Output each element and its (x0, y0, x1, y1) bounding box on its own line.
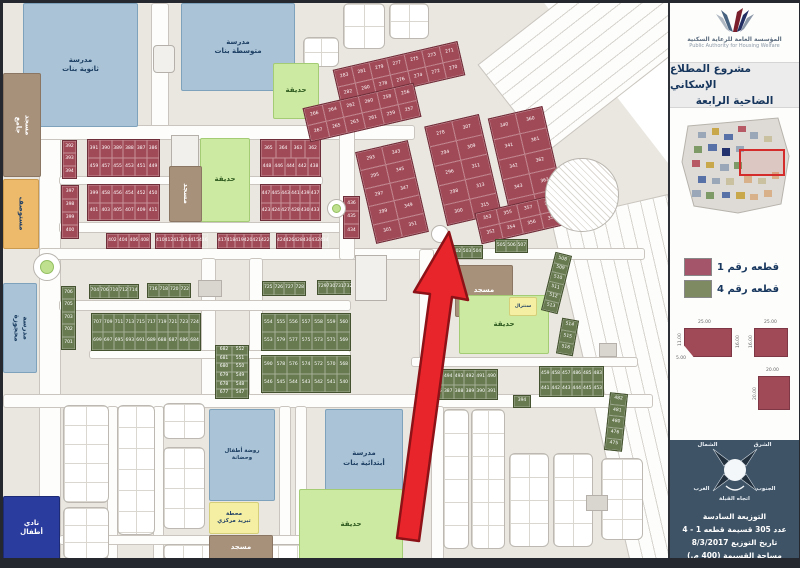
plot-cell: 388 (123, 140, 135, 158)
plot-cell: 724 (189, 314, 200, 332)
plot-cell: 491 (475, 370, 486, 385)
facility-label: حديقة (494, 320, 515, 329)
plot-cell: 558 (312, 314, 325, 332)
dim-label: 16.00 (749, 335, 754, 348)
plot-cell: 402 (107, 234, 118, 248)
plot-cell: 415 (190, 234, 199, 248)
legend-label: قطعه رقم 4 (717, 284, 779, 295)
logo-section: المؤسسة العامة للرعاية السكنية Public Au… (670, 3, 799, 62)
plot-cell: 433 (310, 203, 320, 221)
plot-cell: 556 (287, 314, 300, 332)
plot-cell: 456 (112, 185, 124, 203)
plot-cell: 445 (271, 185, 281, 203)
facility-central-exchange: سنترال (509, 297, 537, 316)
facility-label: محطة تبريد مركزي (217, 511, 250, 525)
plot-cell: 392 (63, 141, 76, 153)
plot-count: عدد 305 قسيمة قطعه 1 - 4 (670, 523, 799, 536)
service-building (153, 45, 175, 73)
plot-cell: 391 (88, 140, 100, 158)
plot-cell: 444 (572, 382, 583, 397)
title-section: مشروع المطلاع الإسكاني الضاحية الرابعة (670, 62, 799, 108)
plot-cell: 447 (261, 185, 271, 203)
plot-area: مساحة القسيمة (400 م.) (670, 549, 799, 558)
plot-block-red: 424426428430432434 (276, 233, 322, 249)
plot-cell: 711 (114, 314, 125, 332)
plot-cell: 547 (232, 389, 248, 398)
plot-cell: 721 (168, 314, 179, 332)
plot-cell: 364 (276, 140, 291, 158)
plot-block-red: 447445443441439437423424427428430433 (260, 184, 321, 221)
plot-block-red: 399458456454452450401403405407409411 (87, 184, 160, 221)
plot-cell: 428 (290, 203, 300, 221)
plot-cell: 552 (232, 346, 248, 355)
plot-cell: 445 (582, 382, 593, 397)
plot-cell: 573 (312, 332, 325, 350)
plot-cell: 446 (273, 158, 285, 176)
plot-cell: 430 (303, 234, 312, 248)
plot-block-red: 402404406408 (106, 233, 151, 249)
plot-cell: 485 (582, 367, 593, 382)
facility-label: مسجد (231, 543, 252, 552)
plot-cell: 576 (287, 356, 300, 374)
district-subtitle: الضاحية الرابعة (696, 93, 774, 109)
plot-cell: 386 (432, 385, 443, 400)
plot-cell: 389 (464, 385, 475, 400)
plot-cell: 555 (275, 314, 288, 332)
plot-block-green: 495494493492491490386387388389390391 (431, 369, 498, 400)
plot-block-green: 514515516 (556, 318, 579, 356)
facility-label: سنترال (515, 304, 531, 310)
facility-label: حديقة (215, 175, 236, 184)
plot-cell: 417 (218, 234, 227, 248)
service-building (586, 495, 608, 511)
plot-shape-square (758, 376, 790, 410)
plot-cell: 270 (443, 58, 464, 78)
service-building (599, 343, 617, 357)
plot-cell: 388 (454, 385, 465, 400)
plot-cell: 398 (62, 199, 78, 212)
dim-label: 20.00 (753, 387, 758, 400)
plot-cell: 450 (147, 185, 159, 203)
plot-block-green: 682552681551680550679549678548677547 (215, 345, 249, 399)
plot-cell: 705 (62, 299, 75, 311)
plot-cell: 439 (300, 185, 310, 203)
plot-cell: 505 (496, 240, 506, 252)
plot-cell: 409 (135, 203, 147, 221)
plot-cell: 706 (62, 287, 75, 299)
plot-cell: 718 (159, 284, 170, 297)
facility-label: حديقة (286, 86, 307, 95)
compass-south-label: الجنوب (756, 486, 775, 492)
plot-cell: 434 (320, 234, 329, 248)
facility-label: روضة أطفال وحضانة (224, 448, 259, 462)
plot-cell: 432 (311, 234, 320, 248)
plot-cell: 540 (337, 374, 350, 392)
plot-cell: 710 (109, 285, 119, 298)
compass-qibla-label: اتجاه القبلة (719, 496, 750, 502)
plot-cell: 679 (216, 372, 232, 381)
plot-block-green: 501502503504 (441, 245, 483, 259)
plot-block-green: 394 (513, 395, 531, 408)
facility-label: حديقة (341, 520, 362, 529)
plot-cell: 731 (335, 281, 344, 294)
plot-cell: 444 (285, 158, 297, 176)
plot-cell: 501 (442, 246, 452, 258)
plot-cell: 436 (344, 197, 359, 211)
info-sidebar: المؤسسة العامة للرعاية السكنية Public Au… (668, 3, 799, 558)
distribution-date: تاريخ التوزيع 8/3/2017 (670, 536, 799, 549)
plot-cell: 578 (275, 356, 288, 374)
plot-cell: 699 (92, 332, 103, 350)
legend: قطعه رقم 1 قطعه رقم 4 (670, 252, 799, 308)
plot-cell: 393 (63, 153, 76, 165)
plot-grid (63, 507, 109, 558)
plot-cell: 732 (344, 281, 353, 294)
plot-grid (471, 409, 505, 549)
plot-cell: 541 (325, 374, 338, 392)
plot-cell: 399 (88, 185, 100, 203)
facility-park-center: حديقة (200, 138, 250, 222)
plot-cell: 426 (286, 234, 295, 248)
plot-cell: 454 (123, 185, 135, 203)
plot-cell: 437 (310, 185, 320, 203)
plot-cell: 410 (156, 234, 165, 248)
overview-map (678, 112, 792, 248)
plot-cell: 551 (232, 355, 248, 364)
plot-cell: 399 (62, 212, 78, 225)
plot-cell: 448 (261, 158, 273, 176)
plot-cell: 459 (88, 158, 100, 176)
plot-block-red: 392393394 (62, 140, 77, 179)
plot-cell: 728 (295, 282, 306, 295)
facility-park-south: حديقة (299, 489, 403, 558)
plot-block-green: 704706710712714 (89, 284, 139, 299)
plot-block-green: 5545555565575585595605535795775755735715… (261, 313, 351, 351)
plot-block-red: 293343295345297347299349301351 (355, 140, 429, 244)
plot-cell: 707 (92, 314, 103, 332)
plot-cell: 421 (252, 234, 261, 248)
dim-label: 5.00 (676, 356, 686, 361)
plot-cell: 365 (261, 140, 276, 158)
service-building (355, 255, 387, 301)
plot-cell: 689 (146, 332, 157, 350)
plot-cell: 559 (325, 314, 338, 332)
plot-cell: 451 (135, 158, 147, 176)
plot-cell: 427 (281, 203, 291, 221)
facility-kindergarten-nursery: روضة أطفال وحضانة (209, 409, 275, 501)
facility-reserved-school: مدرسة محجوزة (3, 283, 37, 373)
plot-cell: 453 (593, 382, 604, 397)
plot-cell: 704 (90, 285, 100, 298)
plot-cell: 492 (464, 370, 475, 385)
compass-east-label: الشرق (754, 442, 772, 448)
plot-cell: 405 (112, 203, 124, 221)
plot-cell: 391 (486, 385, 497, 400)
plot-cell: 712 (119, 285, 129, 298)
plot-cell: 720 (169, 284, 180, 297)
plot-cell: 557 (300, 314, 313, 332)
plot-cell: 459 (540, 367, 551, 382)
facility-label: مسجد (181, 184, 190, 205)
plot-cell: 569 (337, 332, 350, 350)
plot-cell: 455 (112, 158, 124, 176)
plot-cell: 438 (308, 158, 320, 176)
plot-cell: 716 (148, 284, 159, 297)
legend-item-plot1: قطعه رقم 1 (684, 256, 799, 278)
distribution-info-panel: الشمال الشرق الغرب الجنوب اتجاه القبلة ا… (670, 440, 799, 558)
roundabout-west (33, 253, 61, 281)
plot-cell: 401 (88, 203, 100, 221)
plot-cell: 442 (551, 382, 562, 397)
plot-block-red: 436435434 (343, 196, 360, 239)
plot-cell: 680 (216, 363, 232, 372)
plot-cell: 430 (300, 203, 310, 221)
facility-label: مدرسة ثانوية بنات (62, 56, 99, 74)
plot-cell: 549 (232, 372, 248, 381)
facility-label: مسجد جامع (13, 115, 31, 136)
facility-mosque-south: مسجد (209, 535, 273, 558)
plot-cell: 406 (129, 234, 140, 248)
plot-cell: 407 (123, 203, 135, 221)
plot-cell: 414 (182, 234, 191, 248)
plot-cell: 570 (325, 356, 338, 374)
plot-cell: 453 (123, 158, 135, 176)
plot-cell: 693 (124, 332, 135, 350)
facility-grand-mosque: مسجد جامع (3, 73, 41, 177)
plot-cell: 548 (232, 381, 248, 390)
plot-block-red: 397398399400 (61, 185, 79, 239)
plot-grid (443, 409, 469, 549)
plot-block-green: 716718720722 (147, 283, 191, 298)
plot-cell: 486 (572, 367, 583, 382)
plot-cell: 574 (300, 356, 313, 374)
service-building (198, 280, 222, 297)
plot-cell: 387 (443, 385, 454, 400)
plot-cell: 507 (517, 240, 527, 252)
plot-cell: 493 (454, 370, 465, 385)
plot-cell: 483 (593, 367, 604, 382)
plot-block-green: 7077097117137157177197217237246996976956… (91, 313, 201, 351)
plot-cell: 572 (312, 356, 325, 374)
plot-cell: 723 (178, 314, 189, 332)
plot-cell: 397 (62, 186, 78, 199)
plot-grid (63, 405, 109, 503)
plot-cell: 545 (275, 374, 288, 392)
plot-cell: 725 (263, 282, 274, 295)
plot-cell: 443 (281, 185, 291, 203)
plot-cell: 428 (294, 234, 303, 248)
facility-label: مستوصف (16, 197, 25, 231)
legend-swatch-green (684, 280, 712, 298)
plot-block-green: 459458457486485483441442443444445453 (539, 366, 604, 397)
plot-cell: 418 (227, 234, 236, 248)
legend-swatch-red (684, 258, 712, 276)
plot-cell: 420 (244, 234, 253, 248)
overview-highlight (740, 150, 784, 175)
dim-label: 20.00 (766, 368, 779, 373)
plot-cell: 579 (275, 332, 288, 350)
map-sheet: مدرسة ثانوية بناتمدرسة متوسطة بناتمسجد ج… (0, 0, 800, 568)
plot-cell: 729 (318, 281, 327, 294)
plot-block-red: 410412413414415416 (155, 233, 202, 249)
compass-north-label: الشمال (698, 442, 718, 448)
plot-cell: 386 (147, 140, 159, 158)
plot-cell: 408 (139, 234, 150, 248)
service-building (171, 135, 199, 167)
pahw-logo-icon (713, 6, 757, 32)
plot-cell: 730 (327, 281, 336, 294)
plot-cell: 457 (561, 367, 572, 382)
plot-cell: 575 (300, 332, 313, 350)
plot-cell: 703 (62, 312, 75, 324)
plot-cell: 560 (337, 314, 350, 332)
plot-cell: 434 (344, 224, 359, 238)
plot-cell: 394 (514, 396, 530, 407)
plot-block-green: 505506507 (495, 239, 528, 253)
compass-west-label: الغرب (694, 486, 710, 492)
plot-cell: 714 (128, 285, 138, 298)
roundabout-east-junction (545, 158, 619, 232)
plot-cell: 687 (168, 332, 179, 350)
plot-cell: 706 (100, 285, 110, 298)
plot-cell: 363 (291, 140, 306, 158)
site-plan-map: مدرسة ثانوية بناتمدرسة متوسطة بناتمسجد ج… (3, 3, 668, 558)
plot-cell: 503 (462, 246, 472, 258)
plot-cell: 577 (287, 332, 300, 350)
plot-block-red: 417418419420421422 (217, 233, 270, 249)
plot-cell: 717 (146, 314, 157, 332)
plot-block-green: 5905785765745725705685465455445435425415… (261, 355, 351, 393)
legend-item-plot4: قطعه رقم 4 (684, 278, 799, 300)
plot-cell: 544 (287, 374, 300, 392)
plot-cell: 389 (112, 140, 124, 158)
plot-cell: 681 (216, 355, 232, 364)
plot-cell: 502 (452, 246, 462, 258)
plot-cell: 449 (147, 158, 159, 176)
plot-grid (509, 453, 549, 547)
facility-label: نادي أطفال (20, 519, 43, 537)
plot-block-green: 729730731732 (317, 280, 351, 295)
plot-cell: 300 (443, 199, 474, 225)
plot-cell: 684 (189, 332, 200, 350)
plot-cell: 475 (605, 438, 622, 451)
plot-cell: 424 (277, 234, 286, 248)
plot-cell: 697 (103, 332, 114, 350)
plot-block-green: 706705703702701 (61, 286, 76, 350)
road (59, 300, 351, 311)
plot-cell: 546 (262, 374, 275, 392)
plot-cell: 726 (274, 282, 285, 295)
plot-dimensions-section: 25.00 11.00 5.00 16.00 25.00 16.00 20.00… (670, 308, 799, 440)
plot-cell: 571 (325, 332, 338, 350)
plot-grid (389, 3, 429, 39)
facility-children-club: نادي أطفال (3, 496, 60, 558)
plot-cell: 553 (262, 332, 275, 350)
roundabout-center (327, 199, 346, 218)
plot-cell: 702 (62, 324, 75, 336)
plot-cell: 590 (262, 356, 275, 374)
roundabout-small (431, 225, 449, 243)
plot-cell: 554 (262, 314, 275, 332)
plot-cell: 691 (135, 332, 146, 350)
plot-cell: 390 (475, 385, 486, 400)
plot-cell: 422 (261, 234, 270, 248)
plot-cell: 550 (232, 363, 248, 372)
road (339, 125, 355, 260)
plot-cell: 686 (178, 332, 189, 350)
plot-block-red: 391390389388387386459457455453451449 (87, 139, 160, 177)
plot-cell: 452 (135, 185, 147, 203)
plot-cell: 441 (540, 382, 551, 397)
plot-shape-rect (754, 328, 788, 357)
plot-cell: 695 (114, 332, 125, 350)
plot-cell: 719 (157, 314, 168, 332)
plot-cell: 494 (443, 370, 454, 385)
plot-cell: 713 (124, 314, 135, 332)
plot-cell: 423 (261, 203, 271, 221)
plot-cell: 443 (561, 382, 572, 397)
plot-shape-corner (684, 328, 732, 357)
facility-clinic: مستوصف (3, 179, 39, 249)
plot-grid (163, 447, 205, 529)
project-title: مشروع المطلاع الإسكاني (670, 61, 799, 94)
plot-block-green: 725726727728 (262, 281, 306, 296)
plot-cell: 682 (216, 346, 232, 355)
facility-central-cooling-station: محطة تبريد مركزي (209, 502, 259, 534)
plot-cell: 400 (62, 225, 78, 238)
plot-grid (117, 405, 155, 535)
plot-cell: 504 (472, 246, 482, 258)
facility-mosque-center: مسجد (169, 166, 202, 222)
plot-cell: 490 (486, 370, 497, 385)
plot-cell: 404 (118, 234, 129, 248)
plot-cell: 413 (173, 234, 182, 248)
plot-grid (163, 403, 205, 439)
org-name-english: Public Authority for Housing Welfare (670, 43, 799, 49)
plot-cell: 424 (271, 203, 281, 221)
plot-cell: 362 (305, 140, 320, 158)
plot-cell: 387 (135, 140, 147, 158)
plot-cell: 435 (344, 211, 359, 225)
plot-cell: 542 (312, 374, 325, 392)
plot-cell: 543 (300, 374, 313, 392)
plot-cell: 419 (235, 234, 244, 248)
compass-rose: الشمال الشرق الغرب الجنوب اتجاه القبلة (690, 444, 780, 502)
road (59, 222, 349, 233)
plot-cell: 568 (337, 356, 350, 374)
plot-cell: 416 (199, 234, 208, 248)
plot-cell: 412 (165, 234, 174, 248)
facility-label: مدرسة أبتدائية بنات (343, 449, 385, 467)
plot-cell: 709 (103, 314, 114, 332)
plot-cell: 715 (135, 314, 146, 332)
plot-cell: 458 (100, 185, 112, 203)
road (201, 258, 216, 397)
facility-label: مدرسة متوسطة بنات (214, 38, 261, 56)
plot-cell: 441 (290, 185, 300, 203)
plot-cell: 678 (216, 381, 232, 390)
plot-block-red: 365364363362448446444442438 (260, 139, 321, 177)
org-name-arabic: المؤسسة العامة للرعاية السكنية (670, 36, 799, 43)
plot-cell: 390 (100, 140, 112, 158)
plot-cell: 442 (296, 158, 308, 176)
overview-map-section (670, 108, 799, 252)
plot-cell: 257 (398, 100, 420, 120)
plot-grid (343, 3, 385, 49)
dim-label: 11.00 (678, 333, 683, 346)
dim-label: 16.00 (736, 335, 741, 348)
plot-cell: 495 (432, 370, 443, 385)
